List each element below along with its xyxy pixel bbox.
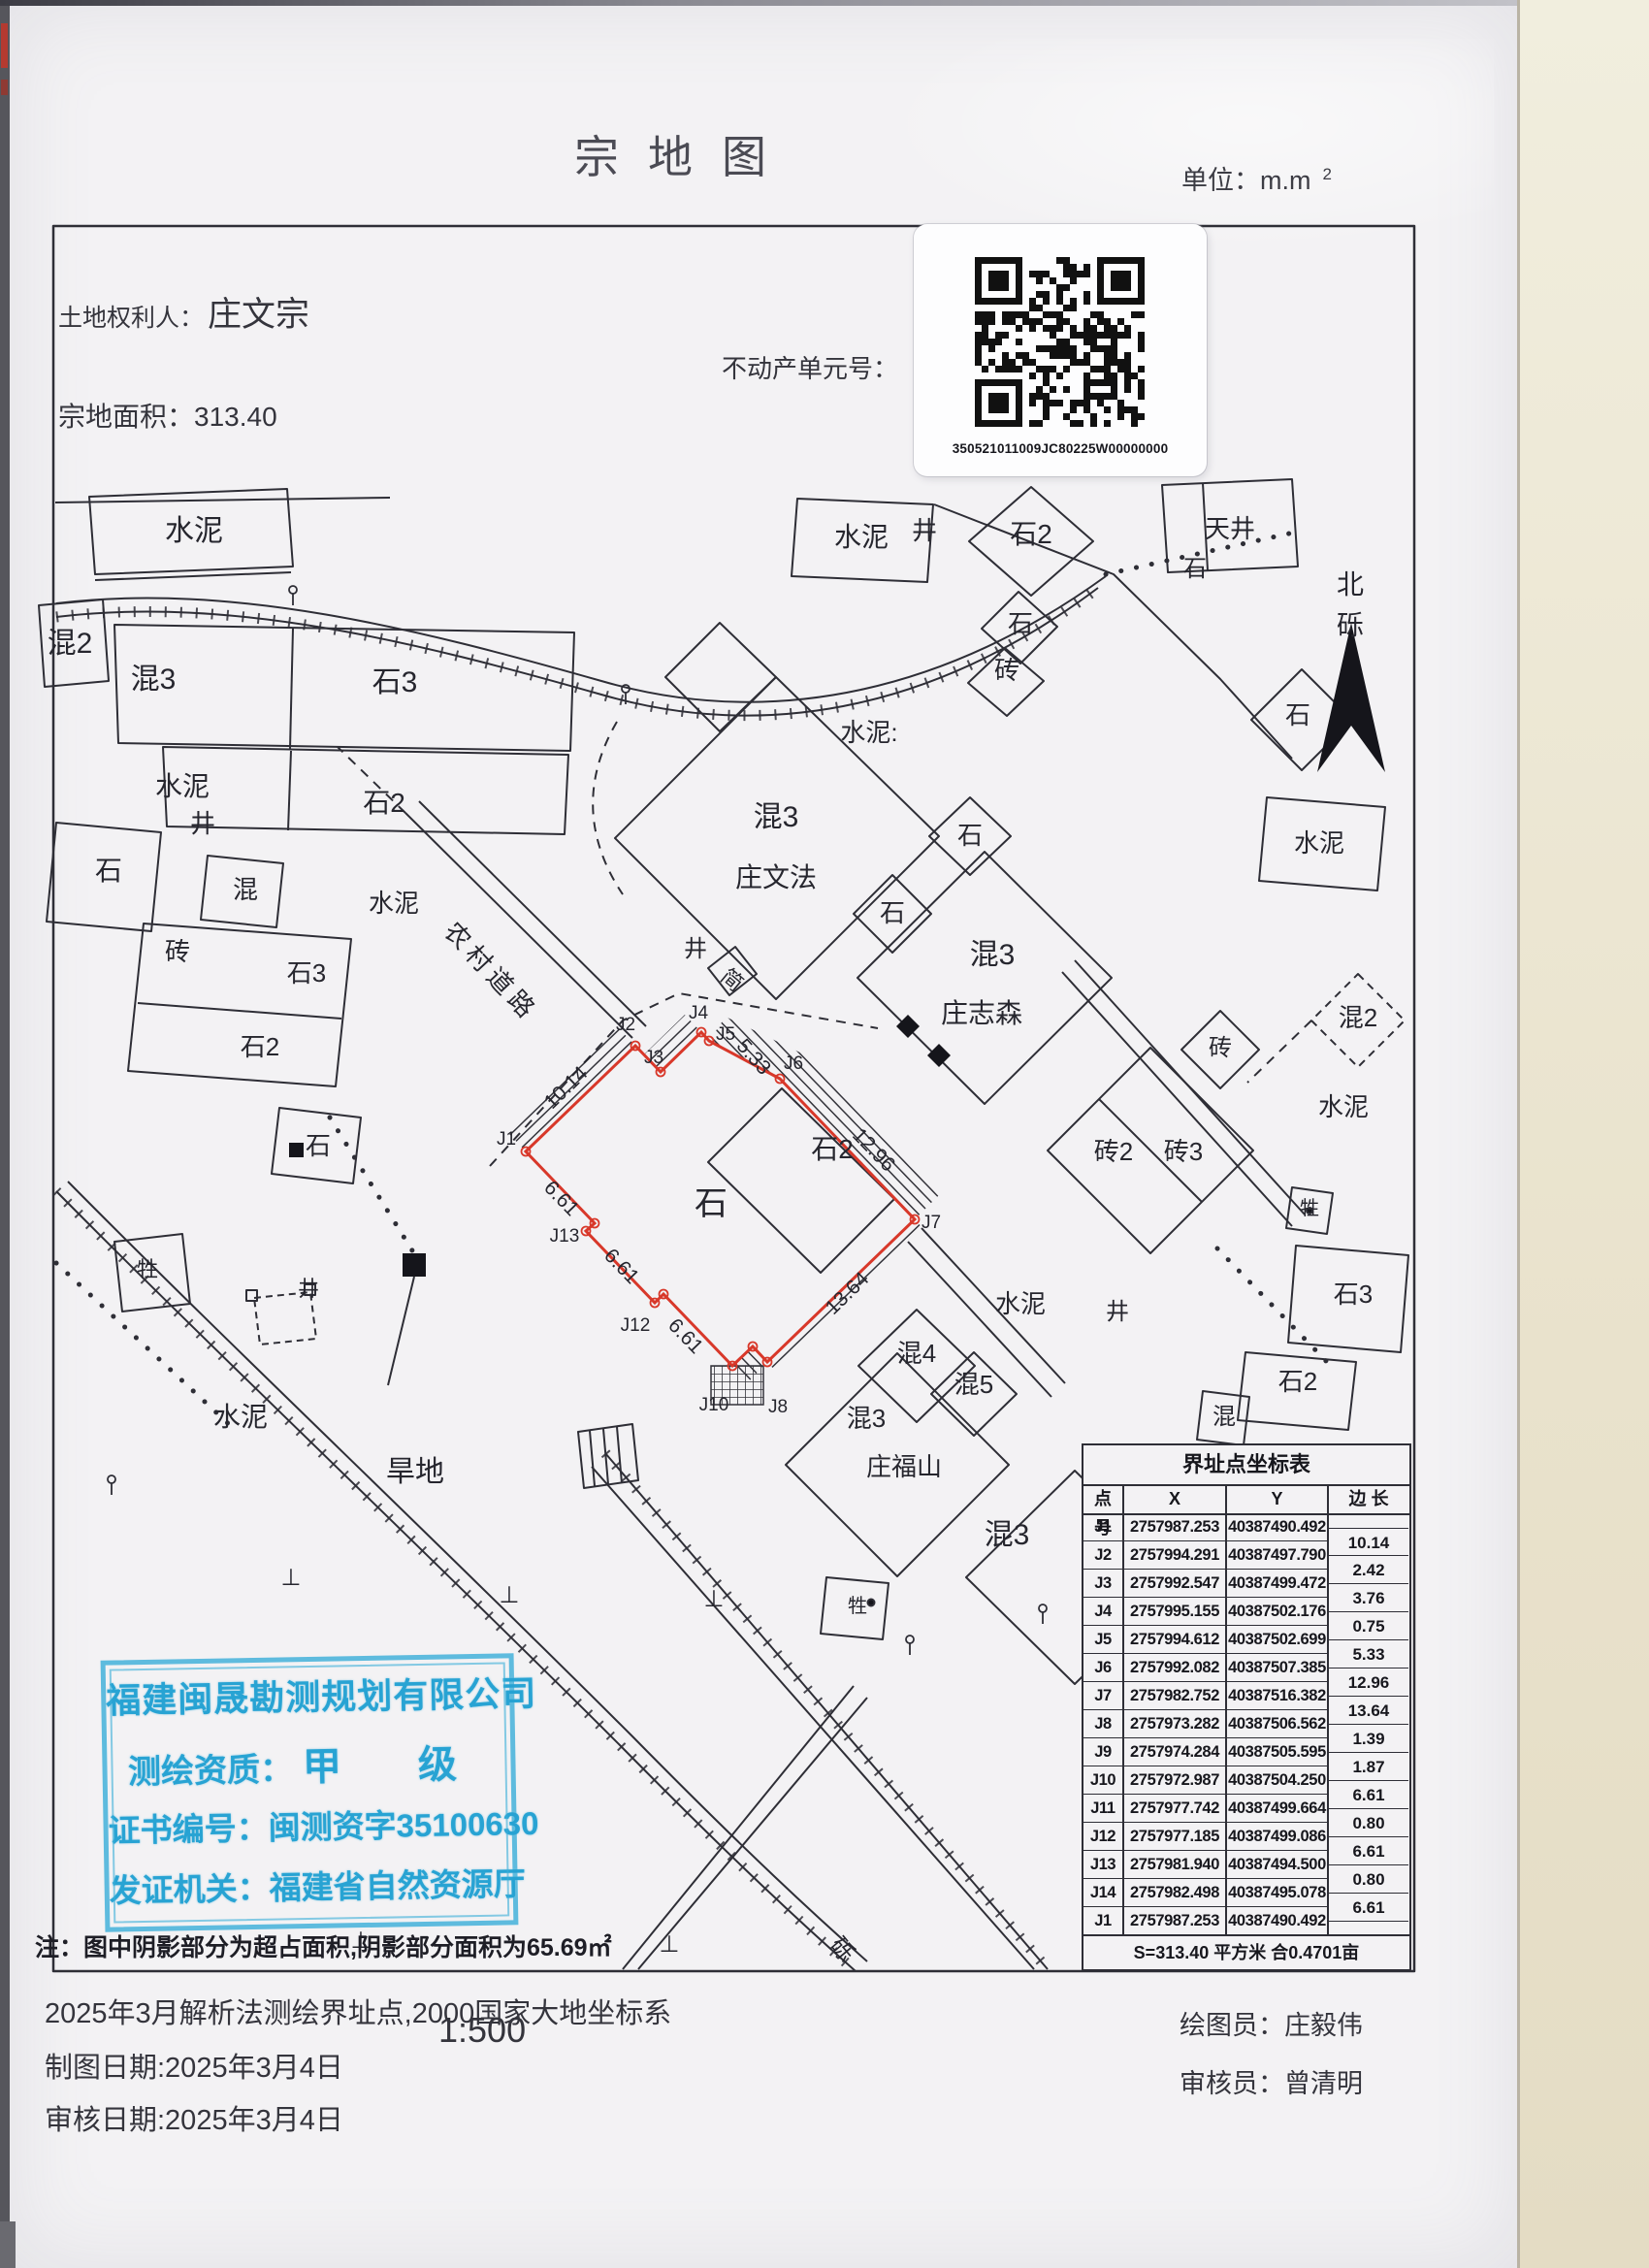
map-label: 石: [957, 821, 983, 850]
map-label: 水泥:: [840, 718, 897, 747]
map-label: 石2: [363, 788, 405, 818]
table-row: J52757994.61240387502.699: [1083, 1626, 1329, 1654]
table-cell: 40387505.595: [1227, 1738, 1329, 1766]
stamp-qualification-label: 测绘资质：: [128, 1751, 294, 1791]
qr-number: 350521011009JC80225W00000000: [914, 441, 1207, 456]
draw-date: 制图日期:2025年3月4日: [45, 2045, 343, 2086]
map-label: J13: [550, 1226, 580, 1247]
coord-table: 界址点坐标表 点 号 X Y 边 长 J12757987.25340387490…: [1082, 1443, 1411, 1971]
review-date: 审核日期:2025年3月4日: [45, 2097, 343, 2138]
map-label: 水泥: [213, 1402, 268, 1432]
edge-length-cell: 1.39: [1329, 1725, 1408, 1753]
map-label: J8: [768, 1397, 788, 1417]
table-cell: 40387490.492: [1227, 1907, 1329, 1935]
map-label: 井: [684, 936, 707, 962]
stamp-qualification: 测绘资质：甲 级: [107, 1732, 511, 1795]
map-label: 混3: [847, 1404, 886, 1433]
table-footer: S=313.40 平方米 合0.4701亩: [1083, 1934, 1409, 1969]
map-label: J3: [644, 1048, 663, 1068]
map-label: 混: [233, 875, 258, 904]
map-label: J2: [616, 1015, 635, 1035]
map-label: 石2: [1010, 519, 1052, 549]
map-label: 天井: [1205, 514, 1255, 543]
map-label: 砖: [165, 937, 190, 966]
length-column: 10.142.423.760.755.3312.9613.641.391.876…: [1329, 1513, 1408, 1935]
table-row: J72757982.75240387516.382: [1083, 1682, 1329, 1710]
edge-length-cell: 0.80: [1329, 1865, 1408, 1894]
table-cell: 40387507.385: [1227, 1654, 1329, 1682]
table-cell: 40387506.562: [1227, 1710, 1329, 1738]
header-x: X: [1124, 1484, 1227, 1513]
table-row: J142757982.49840387495.078: [1083, 1879, 1329, 1907]
map-label: 混: [1212, 1404, 1236, 1430]
map-label: 砖2: [1094, 1137, 1133, 1166]
table-cell: J12: [1083, 1823, 1124, 1851]
scanned-parcel-map-page: 水泥混2混3石3水泥石2石井混砖石3石2石水泥农村道路牲井水泥旱地水泥井石2石砖…: [0, 0, 1649, 2268]
map-label: 石2: [241, 1032, 279, 1061]
map-label: 牲: [1300, 1197, 1319, 1219]
map-label: 6.61: [539, 1177, 583, 1220]
map-label: 砾: [824, 1932, 859, 1967]
map-label: J4: [689, 1003, 709, 1023]
table-cell: J10: [1083, 1766, 1124, 1795]
edge-length-cell: 5.33: [1329, 1640, 1408, 1669]
table-row: J22757994.29140387497.790: [1083, 1541, 1329, 1570]
map-label: J1: [497, 1129, 516, 1150]
table-cell: 40387499.086: [1227, 1823, 1329, 1851]
drafter: 绘图员：庄毅伟: [1180, 2004, 1363, 2042]
company-stamp: 福建闽晟勘测规划有限公司 测绘资质：甲 级 证书编号：闽测资字35100630 …: [101, 1653, 519, 1931]
table-cell: J9: [1083, 1738, 1124, 1766]
unit-number-label: 不动产单元号：: [722, 349, 898, 385]
table-cell: J2: [1083, 1541, 1124, 1570]
table-cell: 2757995.155: [1124, 1598, 1227, 1626]
table-cell: 2757973.282: [1124, 1710, 1227, 1738]
map-label: 农村道路: [438, 917, 544, 1027]
map-label: J12: [621, 1315, 651, 1336]
table-cell: 2757987.253: [1124, 1907, 1227, 1935]
table-row: J62757992.08240387507.385: [1083, 1654, 1329, 1682]
map-label: 庄志森: [941, 998, 1022, 1028]
edge-length-cell: 10.14: [1329, 1528, 1408, 1556]
table-row: J132757981.94040387494.500: [1083, 1851, 1329, 1879]
map-label: 混3: [131, 664, 177, 696]
map-label: 旱地: [386, 1456, 444, 1488]
map-label: 水泥: [369, 889, 419, 918]
stamp-qualification-value: 甲 级: [303, 1743, 491, 1789]
map-label: 庄福山: [866, 1452, 942, 1481]
map-label: J10: [699, 1395, 729, 1415]
map-label: 井: [190, 809, 215, 838]
edge-length-cell: 6.61: [1329, 1894, 1408, 1922]
qr-card: 350521011009JC80225W00000000: [914, 224, 1207, 476]
edge-length-cell: 1.87: [1329, 1753, 1408, 1781]
map-label: 石: [695, 1185, 727, 1222]
table-cell: J7: [1083, 1682, 1124, 1710]
table-header: 点 号 X Y 边 长: [1083, 1484, 1409, 1515]
map-label: 砖: [994, 656, 1019, 685]
map-label: 混3: [970, 939, 1016, 971]
table-row: J32757992.54740387499.472: [1083, 1570, 1329, 1598]
map-label: 水泥: [995, 1289, 1046, 1318]
table-cell: 2757992.082: [1124, 1654, 1227, 1682]
map-label: 混4: [897, 1339, 936, 1368]
stamp-issuer: 发证机关：福建省自然资源厅: [109, 1858, 513, 1911]
table-cell: 40387494.500: [1227, 1851, 1329, 1879]
edge-length-cell: 6.61: [1329, 1837, 1408, 1865]
edge-length-cell: 12.96: [1329, 1669, 1408, 1697]
table-cell: 40387504.250: [1227, 1766, 1329, 1795]
table-cell: 2757982.752: [1124, 1682, 1227, 1710]
header-y: Y: [1227, 1484, 1329, 1513]
map-label: 6.61: [663, 1314, 707, 1358]
map-label: 砖3: [1164, 1137, 1203, 1166]
map-label: 石: [95, 856, 122, 886]
table-row: J82757973.28240387506.562: [1083, 1710, 1329, 1738]
table-row: J42757995.15540387502.176: [1083, 1598, 1329, 1626]
table-cell: 2757972.987: [1124, 1766, 1227, 1795]
map-label: 石2: [811, 1134, 854, 1164]
table-row: J112757977.74240387499.664: [1083, 1795, 1329, 1823]
map-label: J5: [716, 1024, 735, 1045]
map-label: 砾: [1337, 610, 1364, 640]
map-label: 水泥: [1318, 1092, 1369, 1121]
map-label: 混2: [48, 628, 93, 660]
table-cell: 2757994.612: [1124, 1626, 1227, 1654]
table-cell: 40387499.472: [1227, 1570, 1329, 1598]
map-label: 石: [1285, 700, 1310, 729]
table-row: J12757987.25340387490.492: [1083, 1513, 1329, 1541]
table-cell: J5: [1083, 1626, 1124, 1654]
table-cell: 2757992.547: [1124, 1570, 1227, 1598]
map-label: 石3: [287, 958, 326, 988]
table-cell: 40387502.699: [1227, 1626, 1329, 1654]
map-label: 石: [1183, 556, 1207, 582]
table-cell: 40387502.176: [1227, 1598, 1329, 1626]
map-label: 混5: [954, 1370, 993, 1399]
map-label: ⊥: [281, 1565, 302, 1591]
edge-length-cell: 2.42: [1329, 1556, 1408, 1584]
table-cell: J4: [1083, 1598, 1124, 1626]
survey-method-note: 2025年3月解析法测绘界址点,2000国家大地坐标系: [45, 1991, 671, 2031]
edge-length-cell: 13.64: [1329, 1697, 1408, 1725]
map-label: 水泥: [834, 522, 889, 552]
header-point: 点 号: [1083, 1484, 1124, 1513]
reviewer: 审核员：曾清明: [1180, 2062, 1363, 2100]
map-label: 混3: [985, 1519, 1030, 1551]
north-arrow-icon: [1317, 623, 1385, 772]
map-label: 砖: [1209, 1035, 1232, 1061]
map-label: 石3: [1334, 1280, 1373, 1309]
table-cell: 40387516.382: [1227, 1682, 1329, 1710]
table-cell: 2757982.498: [1124, 1879, 1227, 1907]
table-row: J102757972.98740387504.250: [1083, 1766, 1329, 1795]
qr-code-icon: [975, 257, 1145, 427]
table-cell: 2757987.253: [1124, 1513, 1227, 1541]
map-label: 水泥: [1294, 828, 1344, 858]
edge-length-cell: 0.75: [1329, 1612, 1408, 1640]
table-cell: J11: [1083, 1795, 1124, 1823]
map-label: 石2: [1278, 1367, 1317, 1396]
map-label: 石3: [372, 666, 418, 698]
map-label: ⊥: [660, 1931, 680, 1958]
map-scale: 1:500: [438, 2010, 526, 2051]
map-label: 简: [716, 964, 748, 996]
table-title: 界址点坐标表: [1083, 1445, 1409, 1486]
map-label: 北: [1337, 569, 1364, 599]
edge-length-cell: 0.80: [1329, 1809, 1408, 1837]
page-title: 宗地图: [574, 122, 795, 186]
table-cell: 40387495.078: [1227, 1879, 1329, 1907]
point-rows: J12757987.25340387490.492J22757994.29140…: [1083, 1513, 1329, 1935]
table-cell: 40387490.492: [1227, 1513, 1329, 1541]
map-label: 水泥: [155, 771, 210, 801]
table-cell: J3: [1083, 1570, 1124, 1598]
edge-length-cell: 6.61: [1329, 1781, 1408, 1809]
table-cell: 2757977.185: [1124, 1823, 1227, 1851]
map-label: J7: [921, 1213, 941, 1233]
parcel-area-row: 宗地面积：313.40: [58, 396, 277, 435]
table-cell: J6: [1083, 1654, 1124, 1682]
table-cell: J13: [1083, 1851, 1124, 1879]
stamp-cert-number: 证书编号：闽测资字35100630: [108, 1798, 512, 1851]
table-cell: 2757981.940: [1124, 1851, 1227, 1879]
map-label: 石: [880, 898, 905, 927]
map-label: 石: [306, 1131, 331, 1160]
map-label: ⊥: [500, 1582, 520, 1608]
table-cell: J14: [1083, 1879, 1124, 1907]
unit-text: 单位：m.m: [1181, 166, 1310, 195]
map-label: 石: [1008, 609, 1033, 638]
map-label: 庄文法: [735, 862, 817, 892]
map-label: J6: [784, 1053, 803, 1074]
shading-note: 注：图中阴影部分为超占面积,阴影部分面积为65.69㎡: [35, 1928, 612, 1963]
map-label: 混3: [754, 801, 799, 833]
map-label: 井: [1106, 1299, 1129, 1325]
table-cell: 2757977.742: [1124, 1795, 1227, 1823]
map-label: 牲: [137, 1257, 158, 1281]
map-label: ⊥: [704, 1586, 725, 1612]
stamp-company: 福建闽晟勘测规划有限公司: [106, 1666, 510, 1723]
table-row: J12757987.25340387490.492: [1083, 1907, 1329, 1935]
map-label: 井: [298, 1277, 319, 1301]
map-label: 井: [912, 516, 937, 545]
table-row: J92757974.28440387505.595: [1083, 1738, 1329, 1766]
map-label: 水泥: [165, 515, 223, 547]
edge-length-cell: 3.76: [1329, 1584, 1408, 1612]
owner-row: 土地权利人：庄文宗: [58, 287, 309, 337]
table-cell: J1: [1083, 1907, 1124, 1935]
table-cell: J8: [1083, 1710, 1124, 1738]
owner-name: 庄文宗: [208, 296, 309, 334]
owner-label: 土地权利人：: [58, 305, 204, 332]
table-cell: 40387497.790: [1227, 1541, 1329, 1570]
table-cell: J1: [1083, 1513, 1124, 1541]
table-row: J122757977.18540387499.086: [1083, 1823, 1329, 1851]
table-cell: 2757974.284: [1124, 1738, 1227, 1766]
map-label: 混2: [1339, 1003, 1377, 1032]
unit-label: 单位：m.m2: [1181, 159, 1332, 197]
header-length: 边 长: [1329, 1484, 1408, 1513]
unit-superscript: 2: [1322, 165, 1331, 183]
table-cell: 40387499.664: [1227, 1795, 1329, 1823]
table-cell: 2757994.291: [1124, 1541, 1227, 1570]
map-label: 牲: [848, 1595, 867, 1617]
